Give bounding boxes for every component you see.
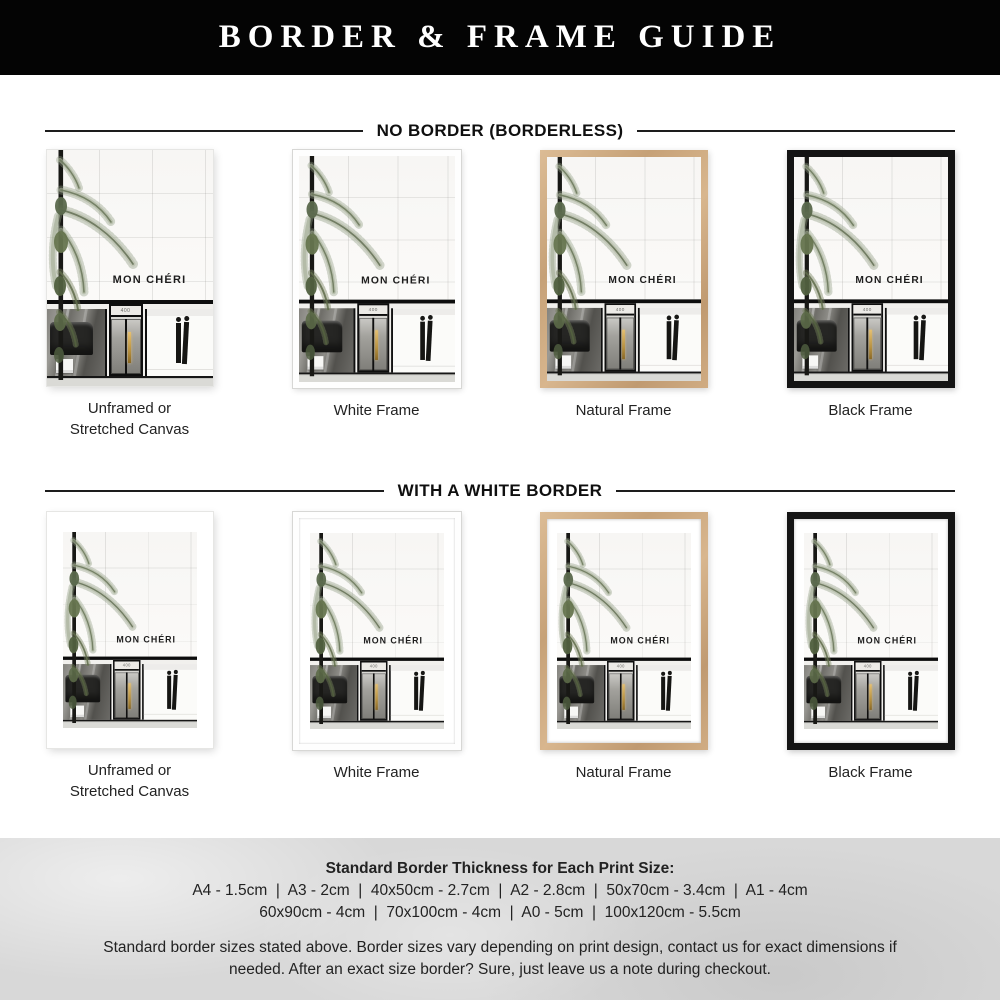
figure-natural-frame-borderless: MON CHÉRI 400: [500, 150, 747, 440]
frame-label: Black Frame: [828, 763, 912, 784]
print-image: MON CHÉRI 400: [794, 157, 948, 381]
figure-unframed-borderless: MON CHÉRI 400: [6, 150, 253, 440]
footer-info-panel: Standard Border Thickness for Each Print…: [0, 838, 1000, 1000]
frame-label: Natural Frame: [576, 401, 672, 422]
border-note: Standard border sizes stated above. Bord…: [100, 937, 900, 982]
unframed-print-preview: MON CHÉRI 400: [47, 150, 213, 386]
artwork-image: MON CHÉRI 400: [547, 157, 701, 381]
palm-tree: [299, 156, 455, 382]
divider-line: [45, 490, 384, 492]
print-image: MON CHÉRI 400: [547, 157, 701, 381]
white-matte-border: MON CHÉRI 400: [547, 519, 701, 743]
frame-label: Black Frame: [828, 401, 912, 422]
artwork-image: MON CHÉRI 400: [47, 150, 213, 386]
natural-frame-preview: MON CHÉRI 400: [540, 150, 708, 388]
palm-tree: [47, 150, 213, 386]
figure-natural-frame-white-border: MON CHÉRI 400: [500, 512, 747, 802]
divider-line: [616, 490, 955, 492]
palm-tree: [63, 532, 197, 728]
print-image: MON CHÉRI 400: [299, 156, 455, 382]
artwork-image: MON CHÉRI 400: [63, 532, 197, 728]
divider-line: [45, 130, 363, 132]
artwork-image: MON CHÉRI 400: [299, 156, 455, 382]
black-frame-preview: MON CHÉRI 400: [787, 512, 955, 750]
figure-black-frame-borderless: MON CHÉRI 400: [747, 150, 994, 440]
frame-label: Natural Frame: [576, 763, 672, 784]
black-frame-preview: MON CHÉRI 400: [787, 150, 955, 388]
section-title: WITH A WHITE BORDER: [398, 481, 603, 501]
page-title: BORDER & FRAME GUIDE: [219, 19, 782, 56]
white-matte-border: MON CHÉRI 400: [299, 518, 455, 744]
borderless-examples-row: MON CHÉRI 400: [0, 150, 1000, 440]
border-sizes-line-2: 60x90cm - 4cm | 70x100cm - 4cm | A0 - 5c…: [0, 904, 1000, 922]
print-image: MON CHÉRI 400: [557, 533, 691, 729]
figure-black-frame-white-border: MON CHÉRI 400: [747, 512, 994, 802]
palm-tree: [804, 533, 938, 729]
frame-interior: MON CHÉRI 400: [794, 157, 948, 381]
border-thickness-heading: Standard Border Thickness for Each Print…: [0, 838, 1000, 878]
section-title: NO BORDER (BORDERLESS): [377, 121, 624, 141]
header-banner: BORDER & FRAME GUIDE: [0, 0, 1000, 75]
white-frame-preview: MON CHÉRI 400: [293, 512, 461, 750]
white-frame-preview: MON CHÉRI 400: [293, 150, 461, 388]
figure-white-frame-borderless: MON CHÉRI 400: [253, 150, 500, 440]
artwork-image: MON CHÉRI 400: [794, 157, 948, 381]
border-sizes-line-1: A4 - 1.5cm | A3 - 2cm | 40x50cm - 2.7cm …: [0, 882, 1000, 900]
figure-unframed-white-border: MON CHÉRI 400: [6, 512, 253, 802]
white-border-examples-row: MON CHÉRI 400: [0, 512, 1000, 802]
natural-frame-preview: MON CHÉRI 400: [540, 512, 708, 750]
frame-label: Unframed or Stretched Canvas: [60, 761, 200, 802]
artwork-image: MON CHÉRI 400: [557, 533, 691, 729]
print-image: MON CHÉRI 400: [804, 533, 938, 729]
palm-tree: [794, 157, 948, 381]
palm-tree: [547, 157, 701, 381]
unframed-print-preview: MON CHÉRI 400: [47, 512, 213, 748]
frame-interior: MON CHÉRI 400: [547, 157, 701, 381]
frame-label: Unframed or Stretched Canvas: [60, 399, 200, 440]
print-image: MON CHÉRI 400: [310, 533, 444, 729]
section-heading-no-border: NO BORDER (BORDERLESS): [45, 119, 955, 143]
white-matte-border: MON CHÉRI 400: [794, 519, 948, 743]
divider-line: [637, 130, 955, 132]
print-image: MON CHÉRI 400: [47, 150, 213, 386]
section-heading-white-border: WITH A WHITE BORDER: [45, 479, 955, 503]
artwork-image: MON CHÉRI 400: [310, 533, 444, 729]
palm-tree: [310, 533, 444, 729]
frame-interior: MON CHÉRI 400: [299, 156, 455, 382]
palm-tree: [557, 533, 691, 729]
frame-label: White Frame: [334, 763, 420, 784]
artwork-image: MON CHÉRI 400: [804, 533, 938, 729]
frame-label: White Frame: [334, 401, 420, 422]
figure-white-frame-white-border: MON CHÉRI 400: [253, 512, 500, 802]
print-image: MON CHÉRI 400: [63, 532, 197, 728]
